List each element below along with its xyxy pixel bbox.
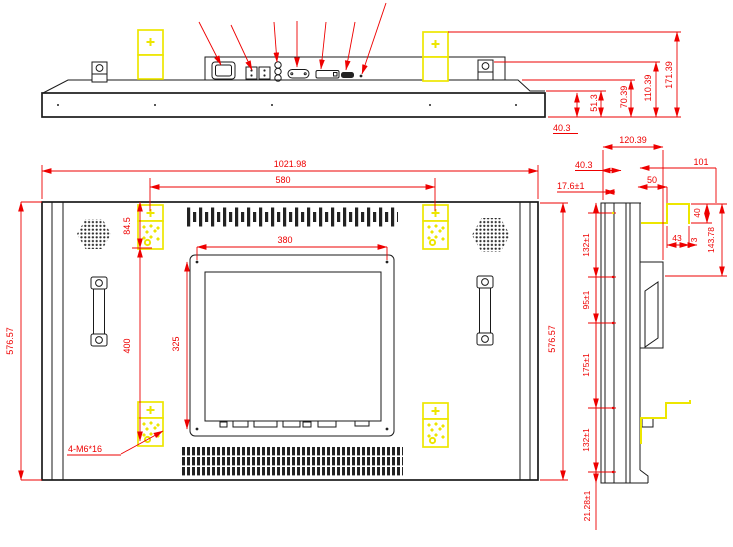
hdmi-connector [341, 72, 354, 78]
indicator-dot [360, 75, 363, 78]
connector-leader-lines [199, 3, 386, 74]
dim-handle-height: 110.39 [643, 62, 656, 117]
dim-label: 110.39 [643, 75, 653, 102]
dim-label: 143.78 [706, 227, 716, 253]
bottom-vent-grille [182, 447, 403, 477]
side-vesa-plate [645, 282, 658, 347]
dim-label: 171.39 [664, 61, 674, 89]
dim-label: 325 [171, 336, 181, 351]
dim-label: 95±1 [581, 290, 591, 309]
top-view-handle-right [478, 60, 493, 80]
top-view-connector-recess [205, 57, 505, 80]
dim-overall-depth: 120.39 [603, 135, 663, 260]
top-view-bezel-bar [42, 93, 545, 117]
dim-label: 40.3 [553, 123, 571, 133]
dim-back-step: 51.3 [589, 91, 601, 117]
dim-label: 43 [672, 233, 682, 243]
screw-spec-label: 4-M6*16 [68, 444, 102, 454]
dim-label: 576.57 [547, 325, 557, 353]
wall-bracket-top-view-left [138, 30, 163, 79]
dim-label: 380 [277, 235, 292, 245]
bezel-hole-ticks [588, 212, 616, 473]
dim-label: 576.57 [5, 327, 15, 355]
connector-leader-line [321, 22, 326, 69]
dvi-connector [316, 71, 339, 79]
side-bezel-bar [601, 203, 614, 483]
dim-hook-depth: 43 [667, 226, 689, 248]
dim-bezel-depth: 40.3 [575, 160, 621, 171]
top-view-body [42, 57, 545, 117]
side-view: 120.39 40.3 17.6±1 101 50 [557, 135, 727, 530]
dim-label: 1021.98 [274, 159, 307, 169]
wall-bracket-back-bottom-left [138, 402, 163, 446]
back-view: 1021.98 580 380 84.5 400 [5, 159, 568, 480]
usb-connectors [246, 67, 270, 79]
dim-hook-height: 40 [691, 204, 712, 223]
dim-label: 50 [647, 175, 657, 185]
top-view-dimensions: 40.3 51.3 70.39 110.39 171.39 [448, 32, 681, 134]
power-inlet-inner [216, 65, 232, 76]
wall-bracket-back-top-left [138, 205, 163, 249]
dim-label: 70.39 [619, 86, 629, 109]
side-hole-pitch-chain: 132±1 95±1 175±1 132±1 21.28±1 [581, 203, 616, 530]
dim-glass-depth: 17.6±1 [557, 181, 615, 192]
dim-label: 580 [275, 175, 290, 185]
wall-bracket-side-bottom [641, 400, 690, 444]
dim-label: 21.28±1 [582, 490, 592, 521]
dim-overall-height-left: 576.57 [5, 202, 42, 480]
dim-label: 132±1 [581, 428, 591, 452]
side-view-body [601, 203, 663, 483]
dim-label: 17.6±1 [557, 181, 584, 191]
dim-label: 84.5 [122, 217, 132, 235]
connector-leader-line [274, 22, 277, 62]
dim-cover-height: 70.39 [619, 80, 631, 117]
dim-bracket-height: 171.39 [664, 32, 677, 117]
connector-leader-line [362, 3, 386, 74]
dim-overall-height-right: 576.57 [540, 203, 568, 480]
dim-label: 120.39 [619, 135, 647, 145]
connector-leader-line [346, 22, 355, 70]
wall-bracket-side-top [641, 204, 689, 224]
wall-bracket-back-top-right [423, 205, 448, 249]
audio-jack-connectors [275, 62, 281, 81]
dim-label: 40.3 [575, 160, 593, 170]
dim-label: 3 [689, 237, 699, 242]
technical-drawing: 40.3 51.3 70.39 110.39 171.39 [0, 0, 733, 547]
vga-connector [288, 70, 309, 79]
rear-connectors [212, 62, 362, 81]
handle-right [477, 276, 493, 345]
dim-label: 101 [693, 157, 708, 167]
dim-label: 175±1 [581, 353, 591, 377]
top-view-handle-left [92, 62, 107, 82]
top-view: 40.3 51.3 70.39 110.39 171.39 [42, 3, 681, 134]
dim-label: 40 [692, 208, 702, 218]
dim-bezel-thickness: 40.3 [553, 93, 578, 134]
drawing-page: 40.3 51.3 70.39 110.39 171.39 [0, 0, 733, 547]
dim-label: 400 [122, 338, 132, 353]
dim-hook-gap: 3 [689, 237, 699, 245]
dim-label: 51.3 [589, 94, 599, 112]
top-view-back-cover-profile [43, 80, 545, 93]
dim-label: 132±1 [581, 233, 591, 257]
wall-bracket-top-view-right [423, 32, 448, 81]
top-vent-slots [186, 207, 398, 227]
connector-leader-line [199, 22, 221, 65]
side-vesa-bump [640, 262, 663, 348]
side-view-dimensions: 120.39 40.3 17.6±1 101 50 [557, 135, 727, 530]
side-bottom-tab [642, 418, 653, 427]
wall-bracket-back-bottom-right [423, 403, 448, 447]
handle-left [91, 277, 107, 346]
